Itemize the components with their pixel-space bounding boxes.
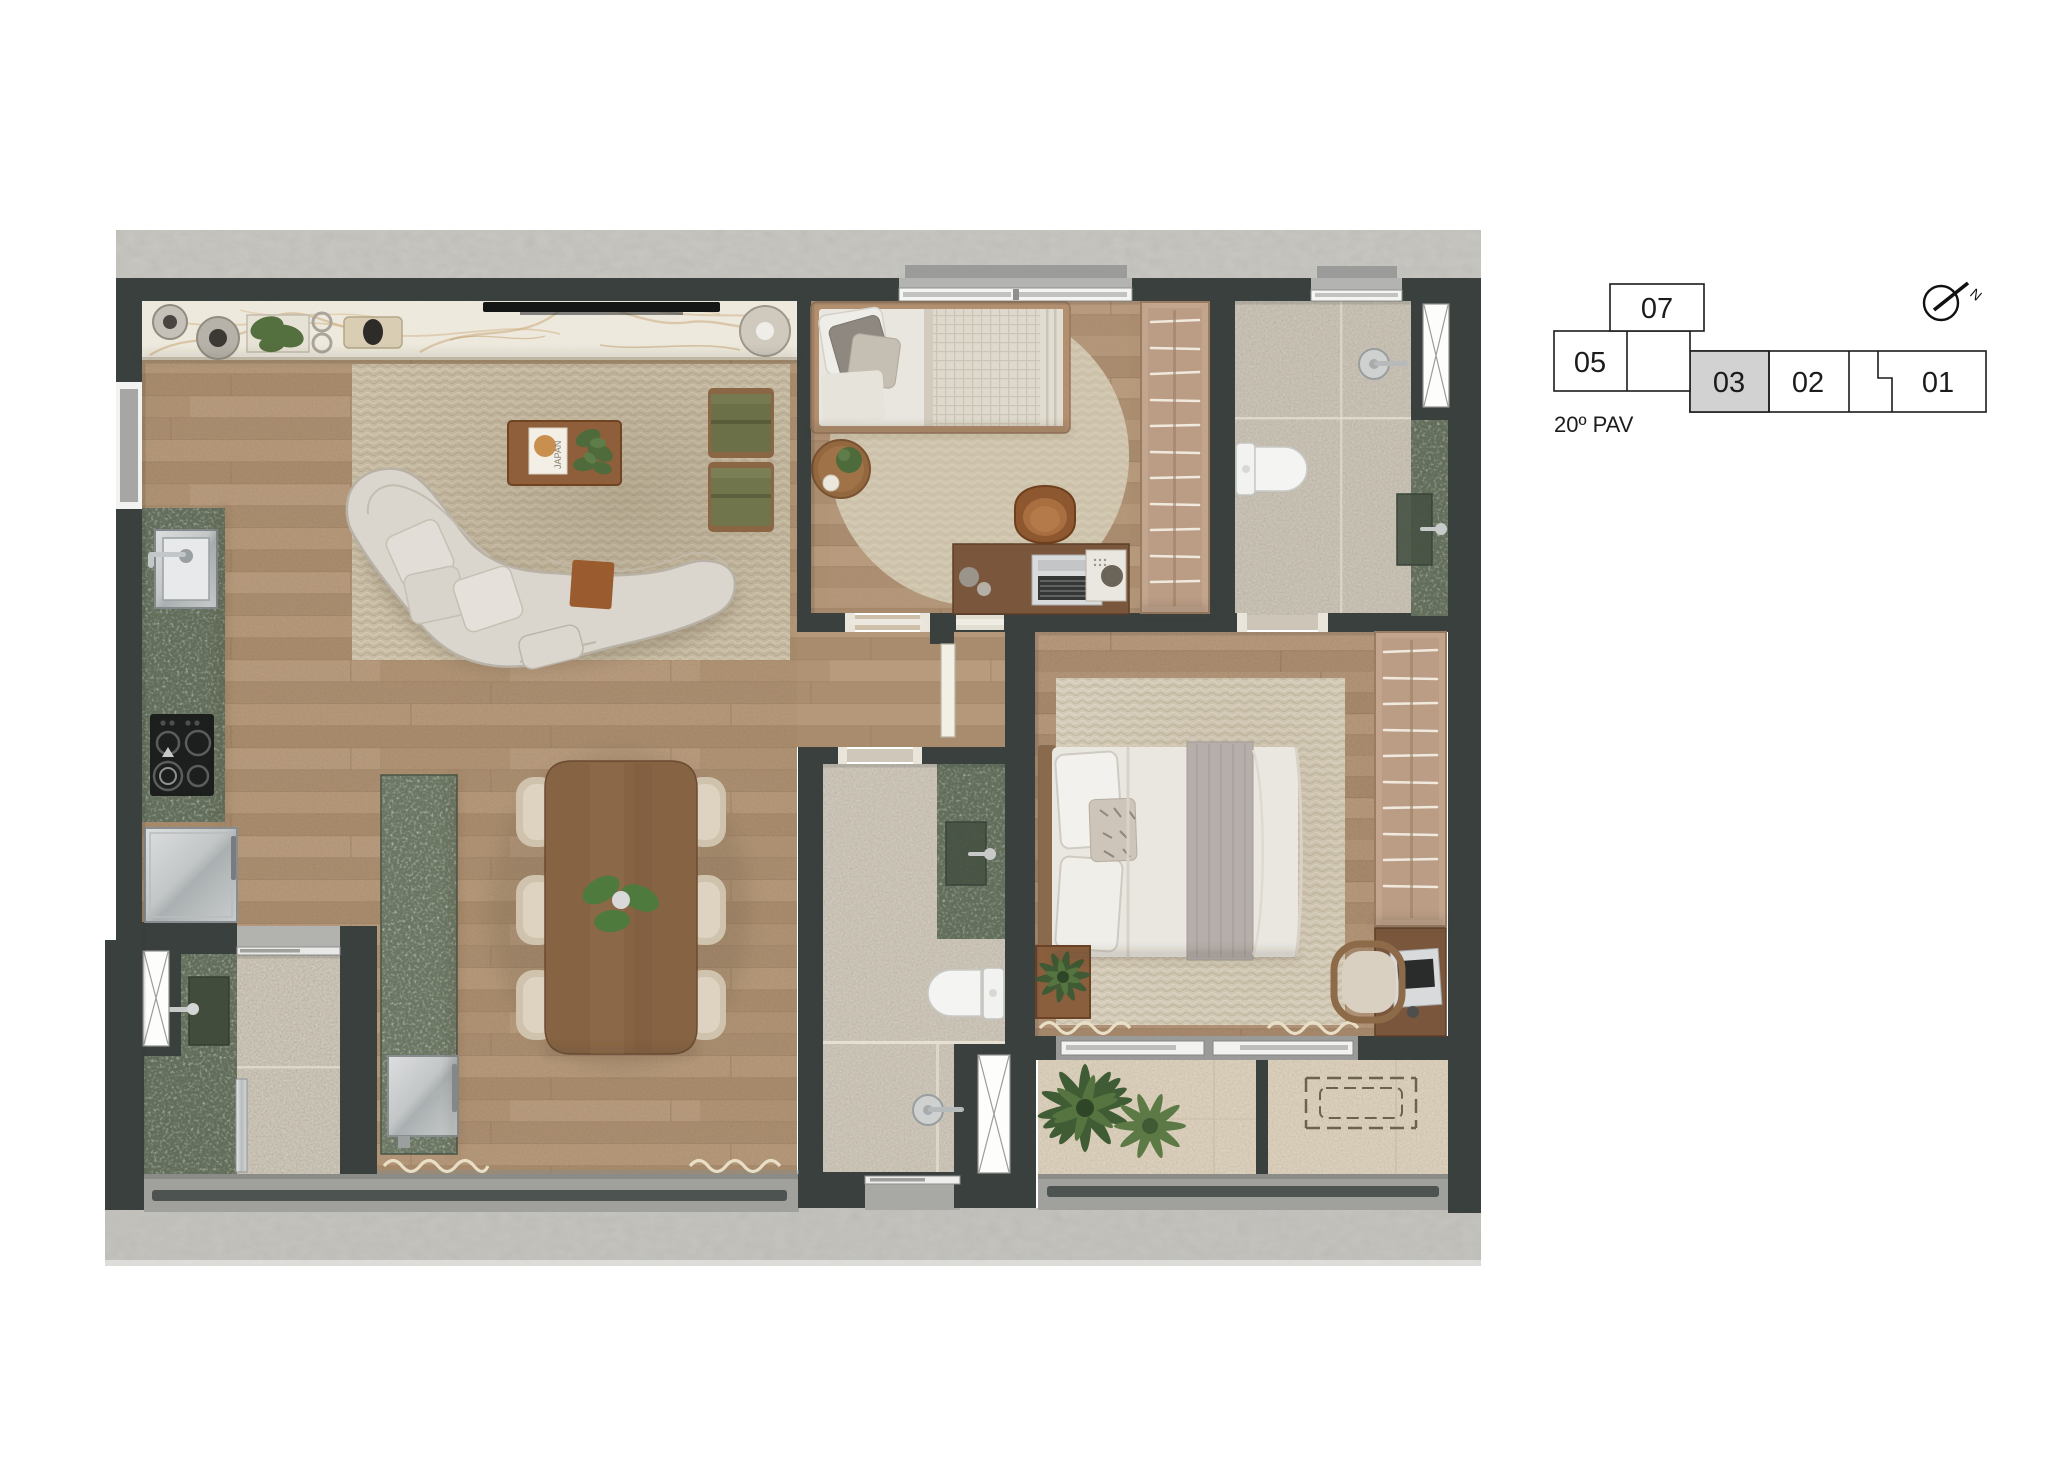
svg-text:JAPAN: JAPAN xyxy=(553,441,563,469)
svg-text:07: 07 xyxy=(1641,293,1673,325)
svg-text:03: 03 xyxy=(1713,367,1745,399)
svg-text:05: 05 xyxy=(1574,347,1606,379)
svg-text:01: 01 xyxy=(1922,367,1954,399)
svg-text:20º PAV: 20º PAV xyxy=(1554,412,1634,437)
svg-text:02: 02 xyxy=(1792,367,1824,399)
